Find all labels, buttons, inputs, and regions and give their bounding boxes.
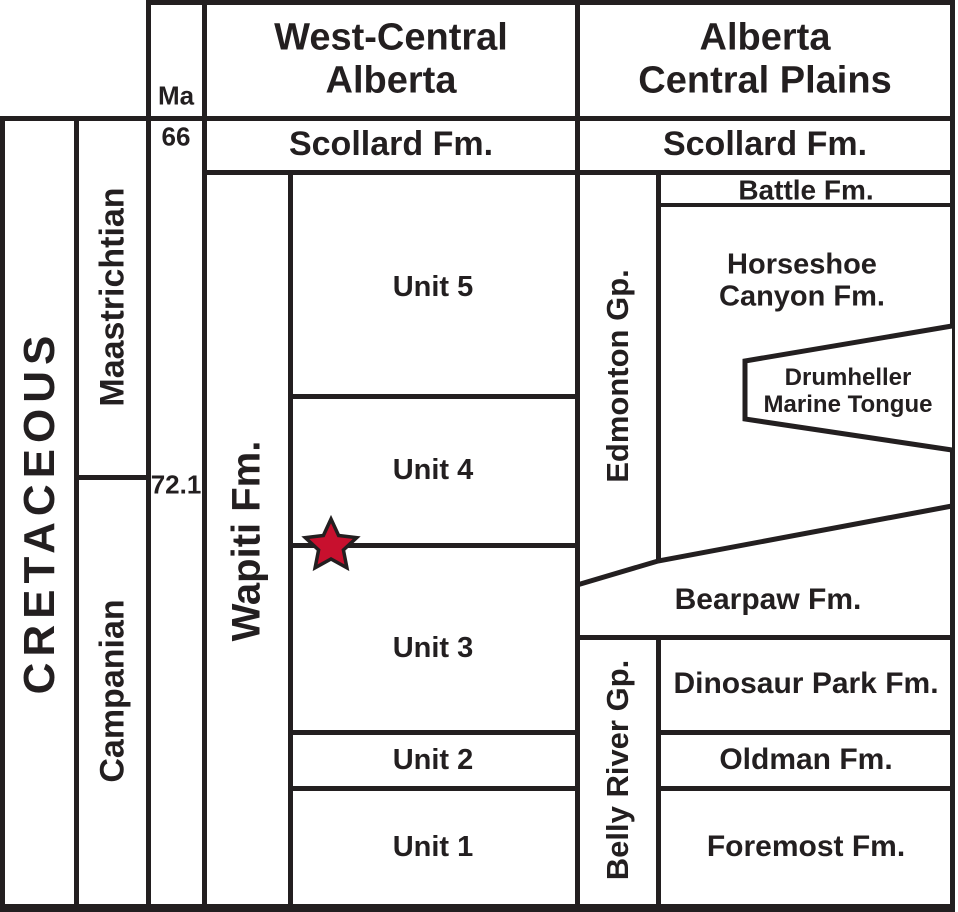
foremost-fm-label: Foremost Fm.	[707, 830, 905, 864]
tick-66: 66	[162, 122, 191, 151]
oldman-fm-label: Oldman Fm.	[719, 743, 892, 777]
stratigraphic-correlation-chart: West-Central Alberta Alberta Central Pla…	[0, 0, 958, 912]
edmonton-gp-label: Edmonton Gp.	[600, 269, 636, 483]
unit-3-label: Unit 3	[393, 632, 474, 664]
tick-72-1: 72.1	[151, 470, 202, 499]
drumheller-marine-tongue-label: Drumheller Marine Tongue	[764, 365, 933, 419]
region-header-west: West-Central Alberta	[274, 16, 508, 101]
scollard-west-label: Scollard Fm.	[289, 125, 493, 163]
unit-5-label: Unit 5	[393, 271, 474, 303]
dinosaur-park-fm-label: Dinosaur Park Fm.	[673, 667, 938, 701]
unit-4-label: Unit 4	[393, 454, 474, 486]
bearpaw-top-boundary-line	[577, 506, 952, 585]
horseshoe-canyon-fm-label: Horseshoe Canyon Fm.	[719, 249, 885, 314]
unit-2-label: Unit 2	[393, 744, 474, 776]
scollard-east-label: Scollard Fm.	[663, 125, 867, 163]
stage-label-campanian: Campanian	[94, 599, 133, 782]
stage-label-maastrichtian: Maastrichtian	[94, 187, 133, 406]
system-label-cretaceous: CRETACEOUS	[15, 330, 65, 695]
region-header-east: Alberta Central Plains	[638, 16, 891, 101]
wapiti-fm-label: Wapiti Fm.	[225, 441, 270, 642]
star-marker-icon	[305, 519, 356, 568]
belly-river-gp-label: Belly River Gp.	[600, 660, 636, 881]
ma-axis-label: Ma	[158, 81, 194, 110]
bearpaw-fm-label: Bearpaw Fm.	[675, 583, 862, 617]
battle-fm-label: Battle Fm.	[738, 174, 873, 205]
unit-1-label: Unit 1	[393, 831, 474, 863]
